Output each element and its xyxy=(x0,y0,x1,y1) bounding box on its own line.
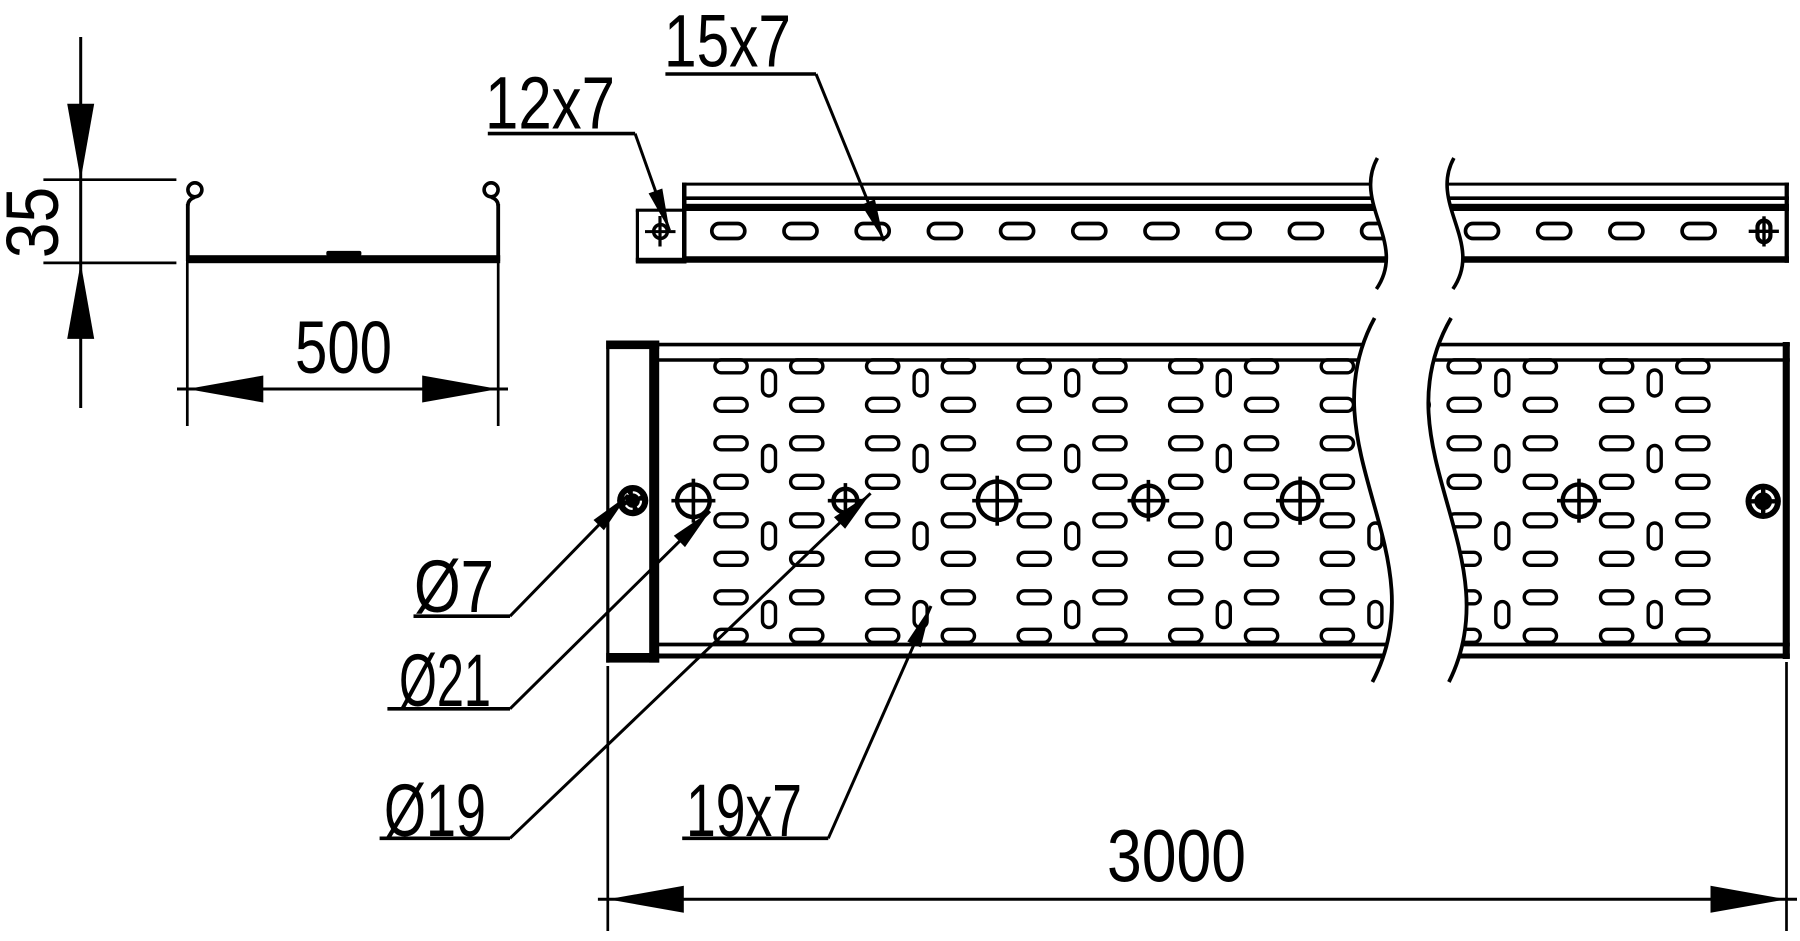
svg-text:3000: 3000 xyxy=(1107,814,1246,897)
svg-text:500: 500 xyxy=(295,306,392,389)
svg-text:15x7: 15x7 xyxy=(664,0,791,82)
svg-text:35: 35 xyxy=(0,187,74,258)
